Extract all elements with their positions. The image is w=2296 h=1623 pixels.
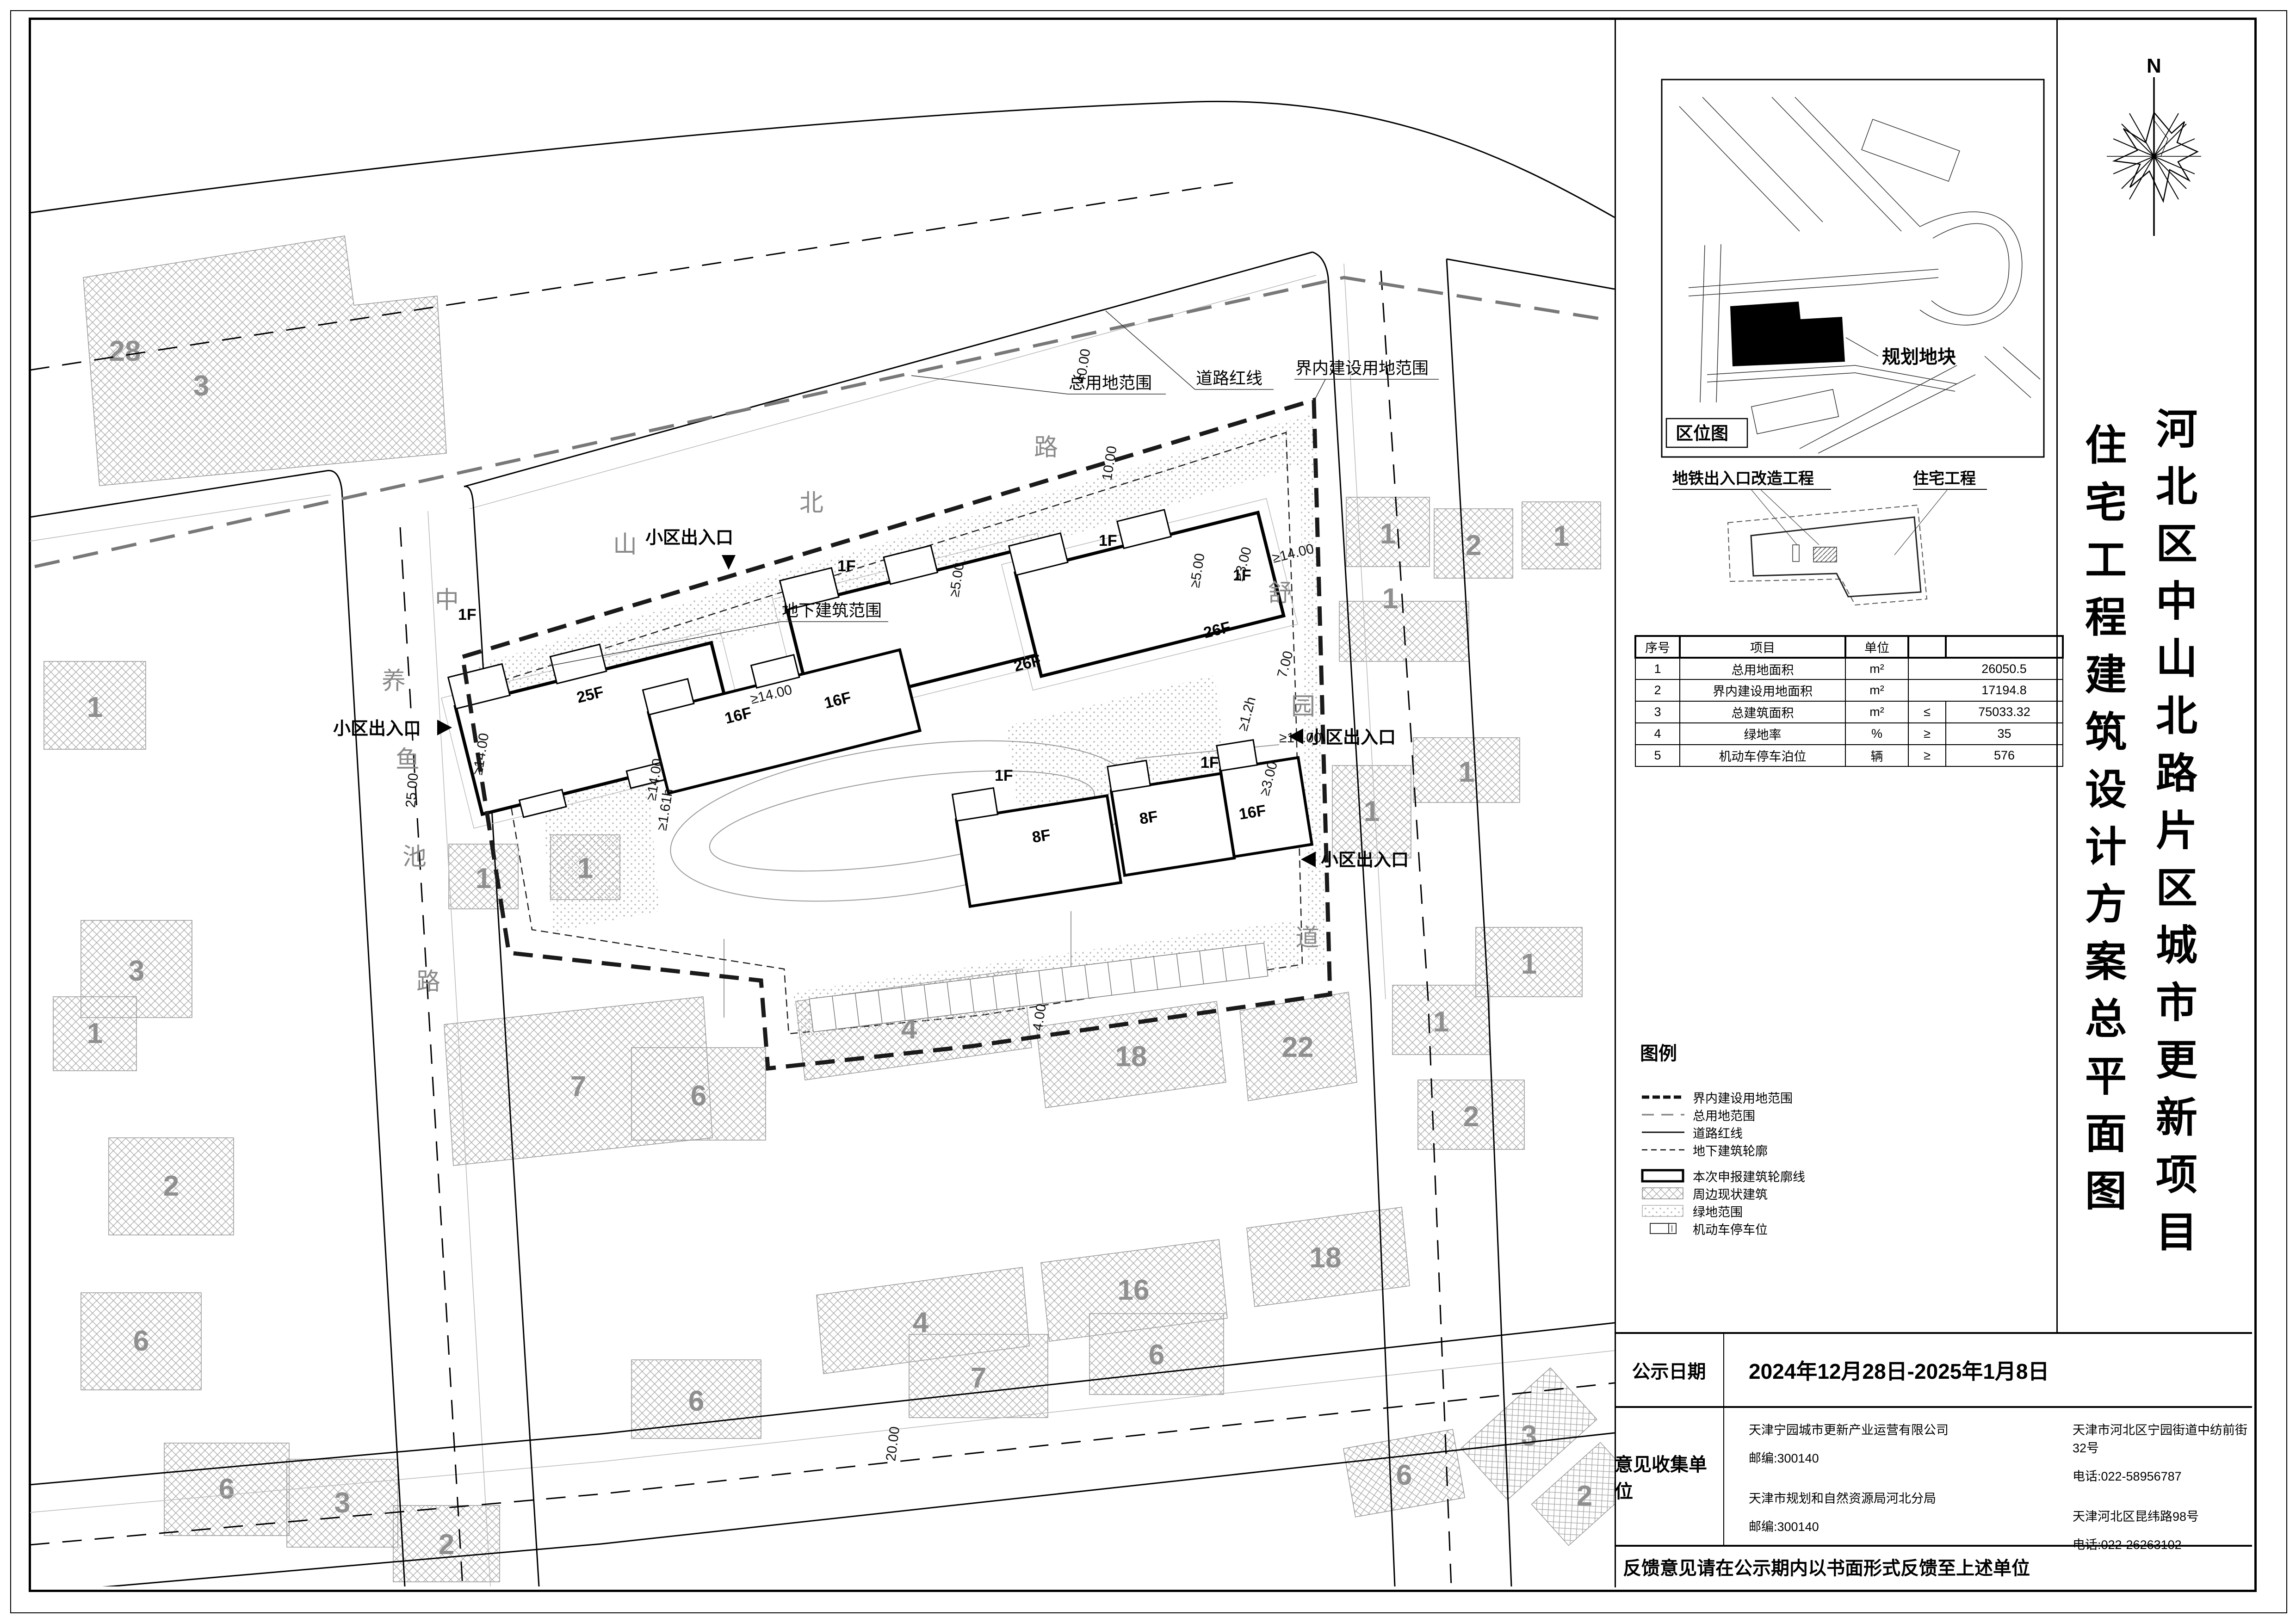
- total-site-symbol: [1640, 1108, 1686, 1122]
- svg-text:舒: 舒: [1268, 580, 1292, 607]
- svg-text:1F: 1F: [1201, 754, 1219, 771]
- svg-text:3: 3: [193, 370, 209, 402]
- svg-text:6: 6: [219, 1473, 235, 1505]
- svg-text:8F: 8F: [1031, 826, 1052, 846]
- svg-text:7: 7: [570, 1071, 586, 1103]
- project-title: 河北区中山北路片区城市更新项目: [2149, 407, 2202, 1314]
- existing-building-symbol: [1640, 1185, 1686, 1201]
- unit-2-address: 天津河北区昆纬路98号: [2073, 1506, 2252, 1524]
- svg-text:28: 28: [109, 335, 141, 367]
- legend-item: 绿地范围: [1640, 1202, 2038, 1220]
- svg-text:4: 4: [913, 1307, 929, 1339]
- legend: 图例 界内建设用地范围 总用地范围 道路红线 地下建筑轮廓 本次申报建筑轮廓线 …: [1640, 1038, 2038, 1237]
- unit-1-name: 天津宁园城市更新产业运营有限公司: [1749, 1420, 2045, 1438]
- svg-text:16: 16: [1118, 1274, 1150, 1306]
- legend-item: 界内建设用地范围: [1640, 1088, 2038, 1106]
- svg-text:池: 池: [402, 844, 427, 870]
- publish-date-value: 2024年12月28日-2025年1月8日: [1749, 1355, 2049, 1385]
- table-row: 3总建筑面积 m² ≤75033.32: [1635, 701, 2063, 723]
- svg-text:20.00: 20.00: [883, 1426, 903, 1462]
- svg-text:北: 北: [799, 490, 823, 517]
- svg-text:路: 路: [1034, 434, 1058, 461]
- svg-text:山: 山: [613, 531, 637, 558]
- feedback-footer-row: 反馈意见请在公示期内以书面形式反馈至上述单位: [1615, 1547, 2252, 1586]
- svg-text:1: 1: [577, 852, 593, 884]
- legend-item: 道路红线: [1640, 1123, 2038, 1141]
- svg-text:3: 3: [129, 955, 144, 987]
- unit-2-name: 天津市规划和自然资源局河北分局: [1749, 1488, 2045, 1506]
- svg-text:6: 6: [688, 1385, 704, 1417]
- svg-text:园: 园: [1291, 693, 1315, 720]
- svg-text:7.00: 7.00: [1275, 649, 1296, 679]
- table-row: 1总用地面积 m² 26050.5: [1635, 658, 2063, 679]
- svg-text:3: 3: [1521, 1420, 1537, 1452]
- underground-outline-symbol: [1640, 1143, 1686, 1157]
- svg-text:18: 18: [1115, 1041, 1147, 1073]
- legend-item: 机动车停车位: [1640, 1220, 2038, 1237]
- road-redline-symbol: [1640, 1125, 1686, 1139]
- svg-text:1: 1: [1380, 518, 1396, 550]
- svg-text:2: 2: [1463, 1101, 1479, 1133]
- drawing-title: 住宅工程建筑设计方案总平面图: [2078, 423, 2131, 1330]
- scope-metro-box: [1813, 547, 1837, 562]
- residential-project-label: 住宅工程: [1913, 469, 1976, 488]
- publish-date-row: 公示日期 2024年12月28日-2025年1月8日: [1615, 1334, 2252, 1406]
- svg-text:2: 2: [1577, 1480, 1592, 1512]
- legend-item: 总用地范围: [1640, 1106, 2038, 1123]
- legend-item: 地下建筑轮廓: [1640, 1141, 2038, 1159]
- svg-text:小区出入口: 小区出入口: [645, 528, 733, 548]
- index-table: 序号 项目 单位 1总用地面积 m² 26050.5 2界内建设用地面积 m² …: [1634, 635, 2064, 767]
- svg-text:1: 1: [87, 691, 103, 723]
- svg-text:1: 1: [1553, 520, 1569, 552]
- legend-item: 周边现状建筑: [1640, 1185, 2038, 1202]
- unit-1-address: 天津市河北区宁园街道中纺前街32号: [2073, 1420, 2252, 1456]
- svg-text:1F: 1F: [458, 606, 477, 623]
- svg-text:18: 18: [1310, 1242, 1342, 1274]
- metro-project-label: 地铁出入口改造工程: [1672, 470, 1814, 488]
- svg-text:小区出入口: 小区出入口: [1308, 728, 1396, 747]
- svg-text:路: 路: [416, 969, 440, 995]
- svg-text:2: 2: [439, 1529, 454, 1561]
- svg-text:1: 1: [1382, 583, 1398, 615]
- svg-text:7: 7: [971, 1362, 986, 1394]
- table-row: 4绿地率 % ≥35: [1635, 723, 2063, 745]
- svg-text:小区出入口: 小区出入口: [1321, 851, 1409, 870]
- svg-text:≥1.2h: ≥1.2h: [1235, 695, 1259, 733]
- svg-text:1F: 1F: [1099, 532, 1117, 549]
- svg-text:2: 2: [1466, 530, 1481, 562]
- parking-space-symbol: [1640, 1221, 1686, 1236]
- svg-text:1: 1: [1364, 796, 1380, 827]
- north-label: N: [2147, 55, 2161, 77]
- svg-text:1: 1: [1459, 756, 1474, 788]
- svg-text:1F: 1F: [995, 767, 1013, 784]
- unit-1-postcode: 邮编:300140: [1749, 1448, 2045, 1466]
- col-unit: 单位: [1845, 636, 1908, 658]
- scope-labels: 地铁出入口改造工程 住宅工程: [1672, 469, 1987, 555]
- label-construction-boundary: 界内建设用地范围: [1295, 358, 1429, 377]
- col-no: 序号: [1635, 636, 1680, 658]
- location-map: 规划地块 区位图: [1661, 79, 2045, 458]
- feedback-units-row: 意见收集单位 天津宁园城市更新产业运营有限公司 邮编:300140 天津市规划和…: [1615, 1408, 2252, 1545]
- svg-text:养: 养: [382, 668, 406, 695]
- table-row: 2界内建设用地面积 m² 17194.8: [1635, 679, 2063, 701]
- svg-text:6: 6: [133, 1325, 149, 1357]
- legend-item: 本次申报建筑轮廓线: [1640, 1167, 2038, 1185]
- compass: N: [2103, 49, 2205, 252]
- table-row: 5机动车停车泊位 辆 ≥576: [1635, 745, 2063, 766]
- svg-text:1F: 1F: [837, 557, 856, 575]
- drawing-sheet: 28 3 1 3 1 2 6 6 3 2 1 1 7 6 4 18 22 4 1…: [0, 0, 2296, 1623]
- new-building-symbol: [1640, 1168, 1686, 1184]
- svg-text:1: 1: [87, 1018, 103, 1049]
- svg-text:8F: 8F: [1138, 808, 1159, 828]
- svg-text:1: 1: [1433, 1006, 1449, 1038]
- existing-buildings: [44, 236, 1615, 1582]
- legend-title: 图例: [1640, 1038, 2038, 1065]
- svg-text:6: 6: [1396, 1459, 1412, 1491]
- svg-text:1: 1: [476, 863, 491, 895]
- scope-figure: 地铁出入口改造工程 住宅工程: [1661, 463, 2045, 611]
- green-area-symbol: [1640, 1203, 1686, 1219]
- svg-text:2: 2: [163, 1170, 179, 1202]
- svg-text:3: 3: [334, 1487, 350, 1519]
- planning-plot-label: 规划地块: [1882, 347, 1956, 367]
- unit-2-postcode: 邮编:300140: [1749, 1517, 2045, 1535]
- svg-text:22: 22: [1282, 1031, 1314, 1063]
- feedback-label: 意见收集单位: [1615, 1450, 1723, 1503]
- label-underground: 地下建筑范围: [782, 601, 882, 620]
- publish-date-label: 公示日期: [1632, 1357, 1706, 1383]
- svg-text:6: 6: [1149, 1339, 1164, 1371]
- feedback-footer: 反馈意见请在公示期内以书面形式反馈至上述单位: [1615, 1553, 2030, 1580]
- svg-text:25.00: 25.00: [403, 772, 421, 808]
- site-plan: 28 3 1 3 1 2 6 6 3 2 1 1 7 6 4 18 22 4 1…: [30, 19, 1615, 1586]
- svg-text:鱼: 鱼: [396, 747, 420, 773]
- location-map-title: 区位图: [1676, 424, 1728, 444]
- label-total-site: 总用地范围: [1069, 373, 1152, 392]
- unit-1-phone: 电话:022-58956787: [2073, 1466, 2252, 1484]
- col-item: 项目: [1680, 636, 1845, 658]
- svg-text:中: 中: [435, 587, 459, 614]
- construction-boundary-symbol: [1640, 1090, 1686, 1104]
- svg-text:1: 1: [1521, 948, 1537, 980]
- svg-text:道: 道: [1295, 925, 1319, 951]
- label-road-redline: 道路红线: [1196, 369, 1262, 388]
- table-header-row: 序号 项目 单位: [1635, 636, 2063, 658]
- svg-text:小区出入口: 小区出入口: [333, 719, 421, 739]
- svg-text:6: 6: [691, 1080, 706, 1112]
